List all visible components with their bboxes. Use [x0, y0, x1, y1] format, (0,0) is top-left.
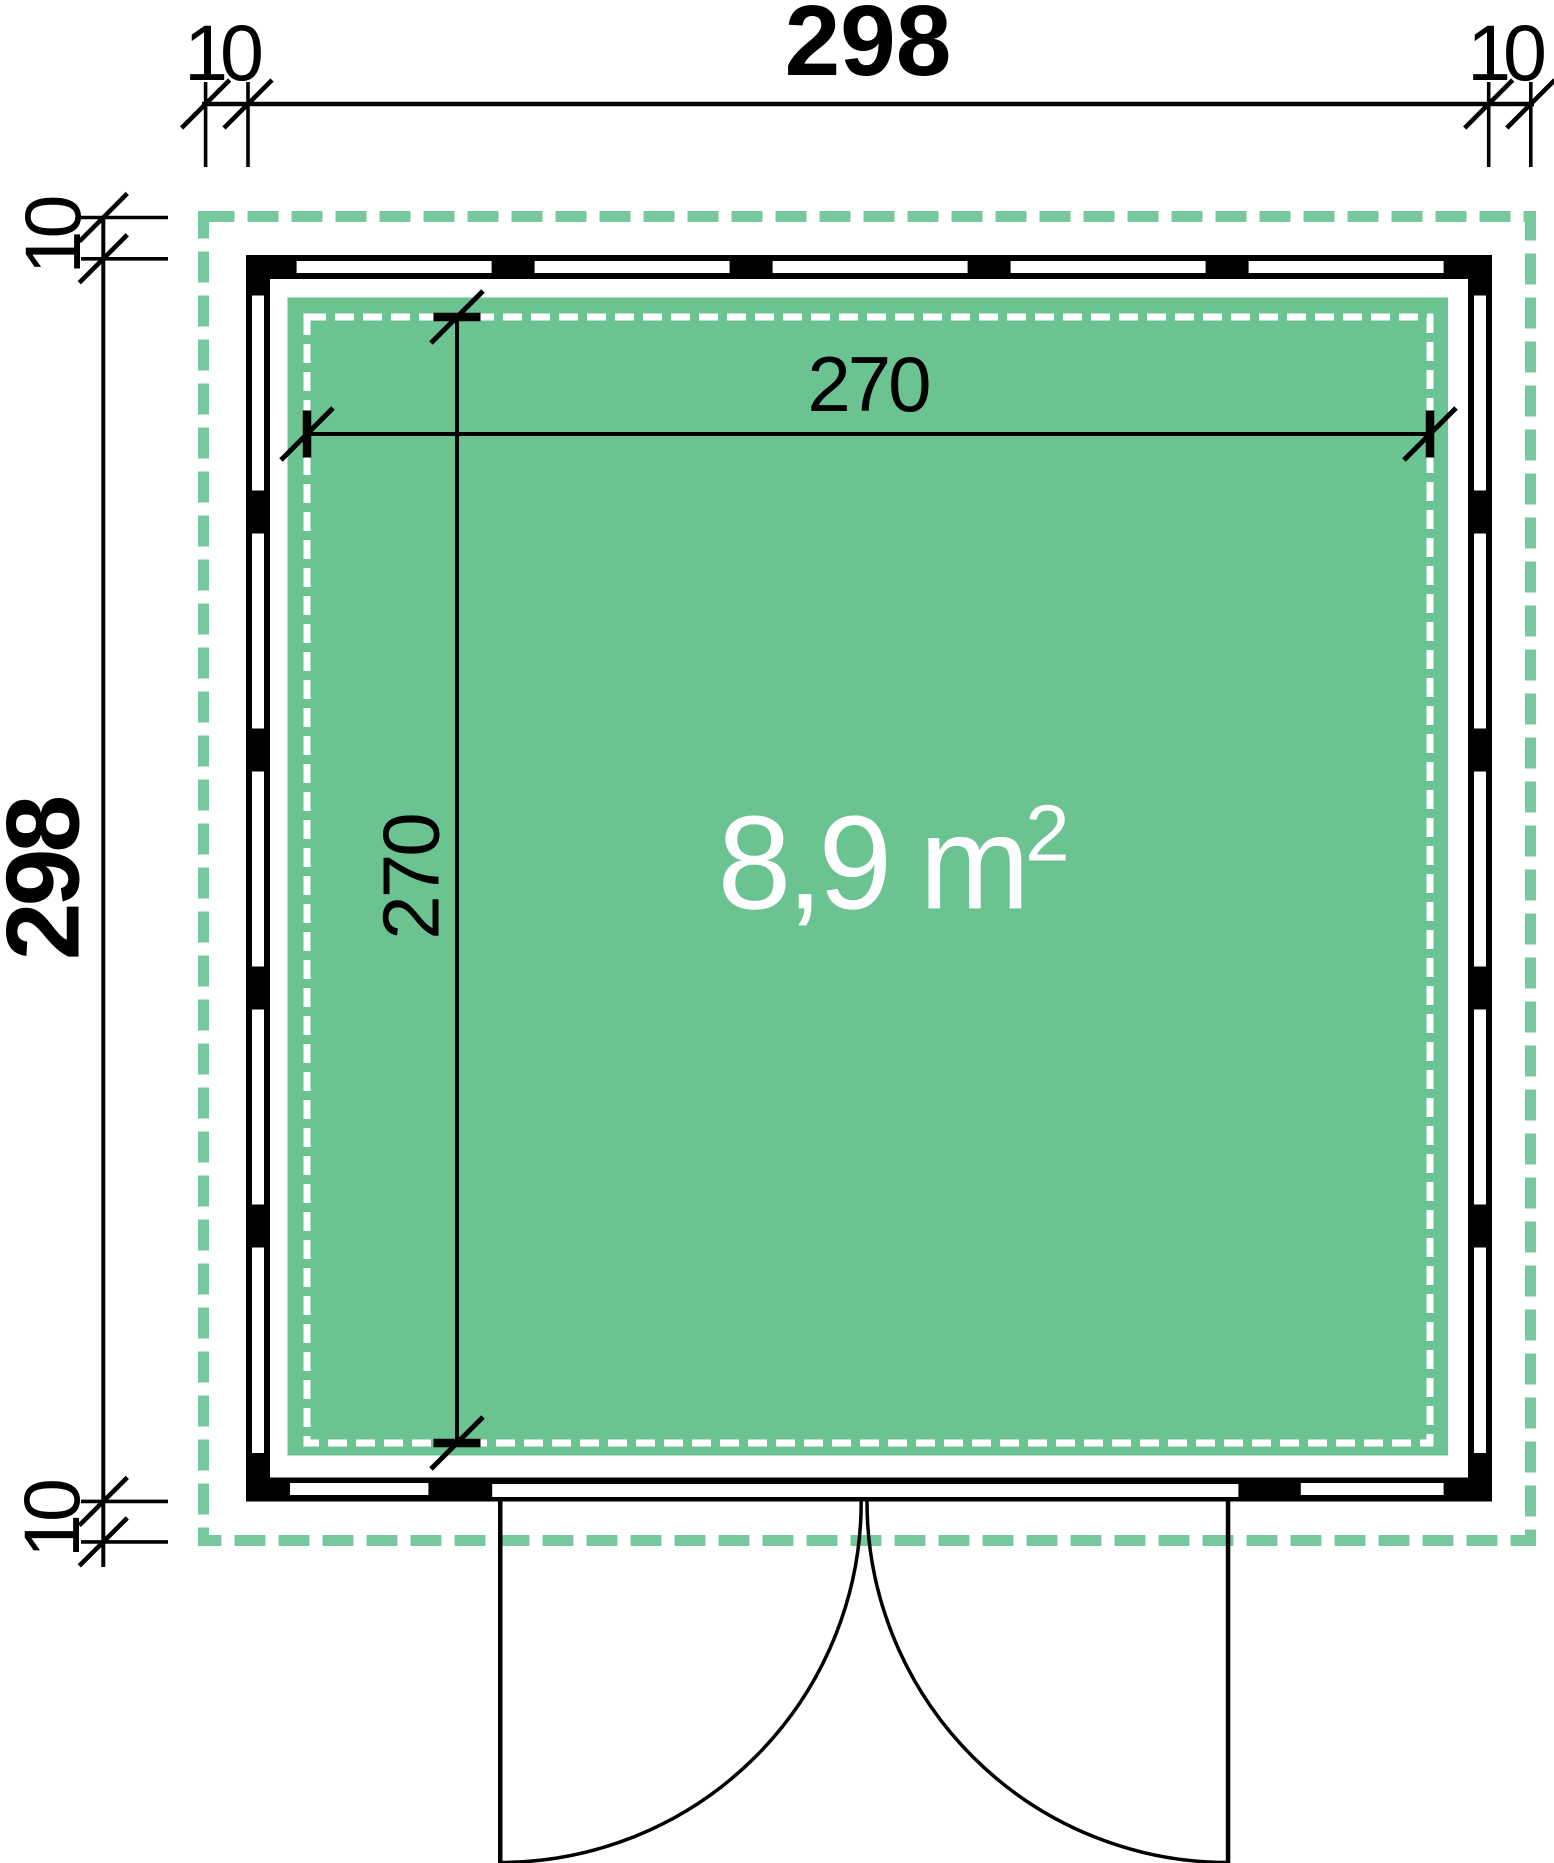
- svg-text:10: 10: [8, 198, 97, 275]
- svg-text:10: 10: [7, 1481, 96, 1558]
- svg-text:270: 270: [807, 340, 929, 428]
- svg-text:298: 298: [0, 798, 101, 961]
- svg-text:270: 270: [367, 815, 456, 940]
- svg-text:298: 298: [785, 0, 952, 97]
- svg-text:8,9 m2: 8,9 m2: [717, 788, 1066, 937]
- svg-text:10: 10: [1467, 8, 1544, 97]
- svg-text:10: 10: [184, 8, 261, 97]
